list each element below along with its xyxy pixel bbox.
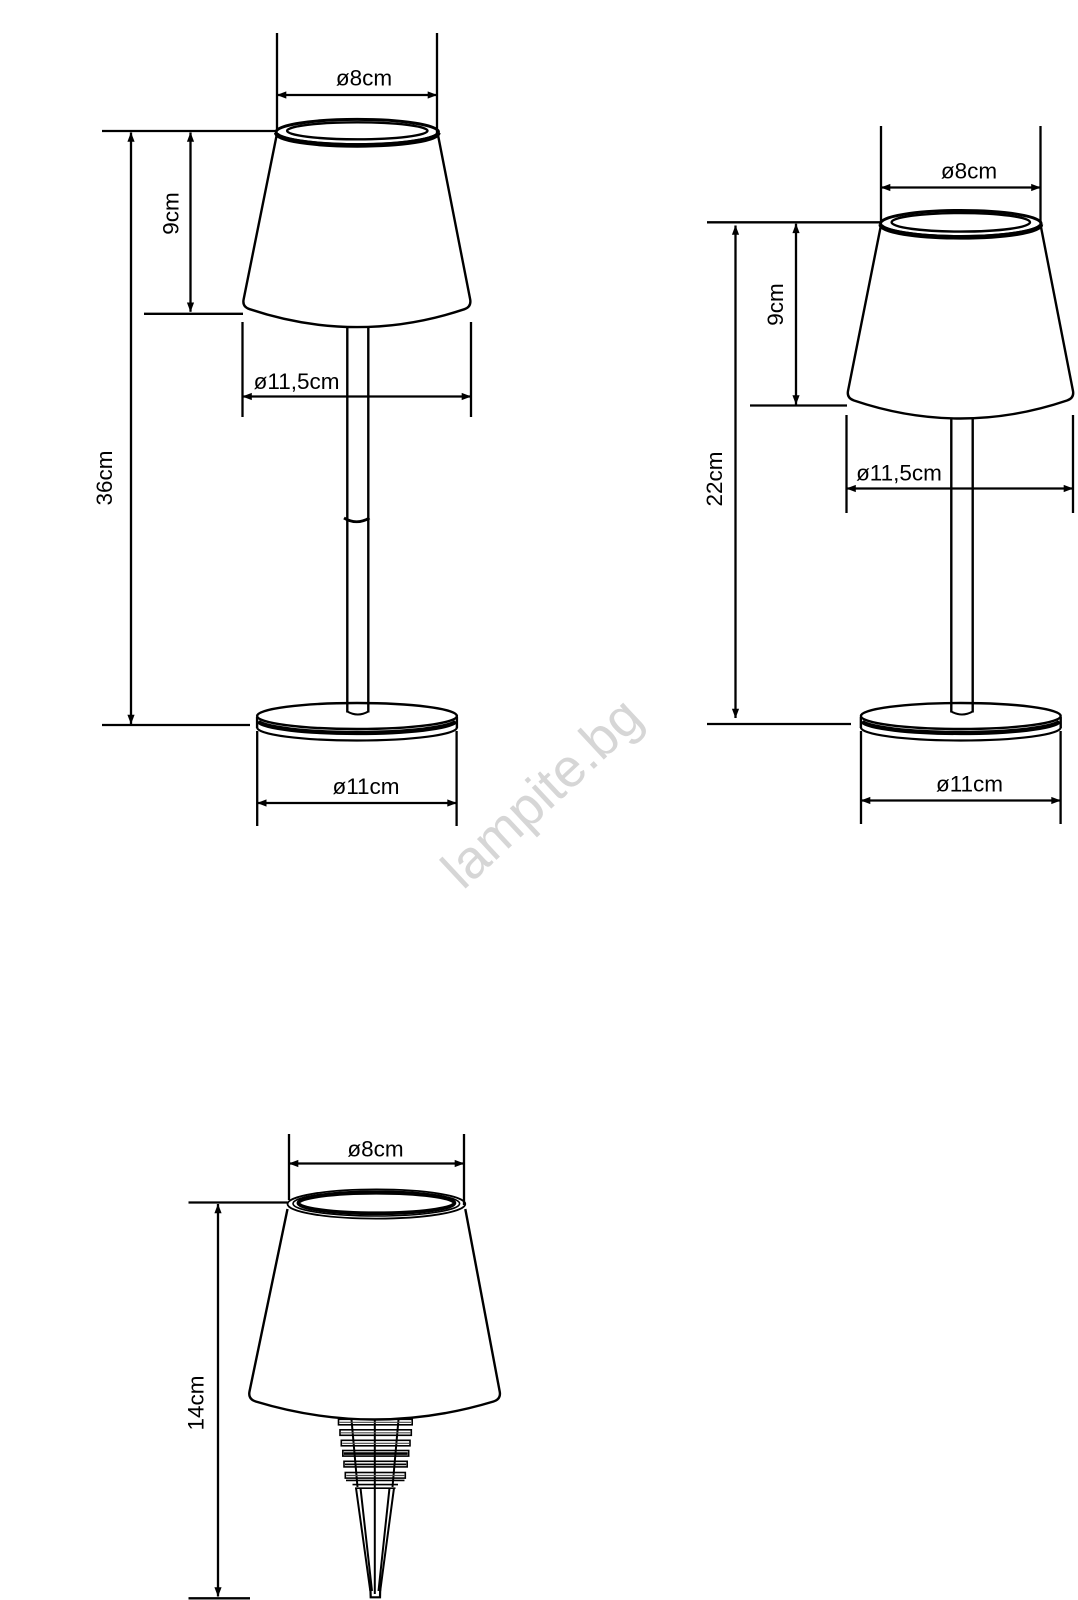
svg-text:lampite.bg: lampite.bg — [430, 686, 653, 900]
svg-text:14cm: 14cm — [184, 1375, 209, 1430]
svg-text:ø11,5cm: ø11,5cm — [856, 461, 942, 486]
svg-text:ø8cm: ø8cm — [347, 1137, 403, 1162]
svg-text:36cm: 36cm — [92, 450, 117, 505]
svg-text:9cm: 9cm — [763, 283, 788, 326]
svg-text:ø8cm: ø8cm — [941, 159, 997, 184]
svg-text:ø11cm: ø11cm — [936, 772, 1003, 797]
svg-text:22cm: 22cm — [702, 451, 727, 506]
svg-text:ø11cm: ø11cm — [332, 774, 399, 799]
svg-text:ø11,5cm: ø11,5cm — [254, 369, 340, 394]
svg-text:9cm: 9cm — [159, 192, 184, 235]
svg-text:ø8cm: ø8cm — [336, 66, 392, 91]
